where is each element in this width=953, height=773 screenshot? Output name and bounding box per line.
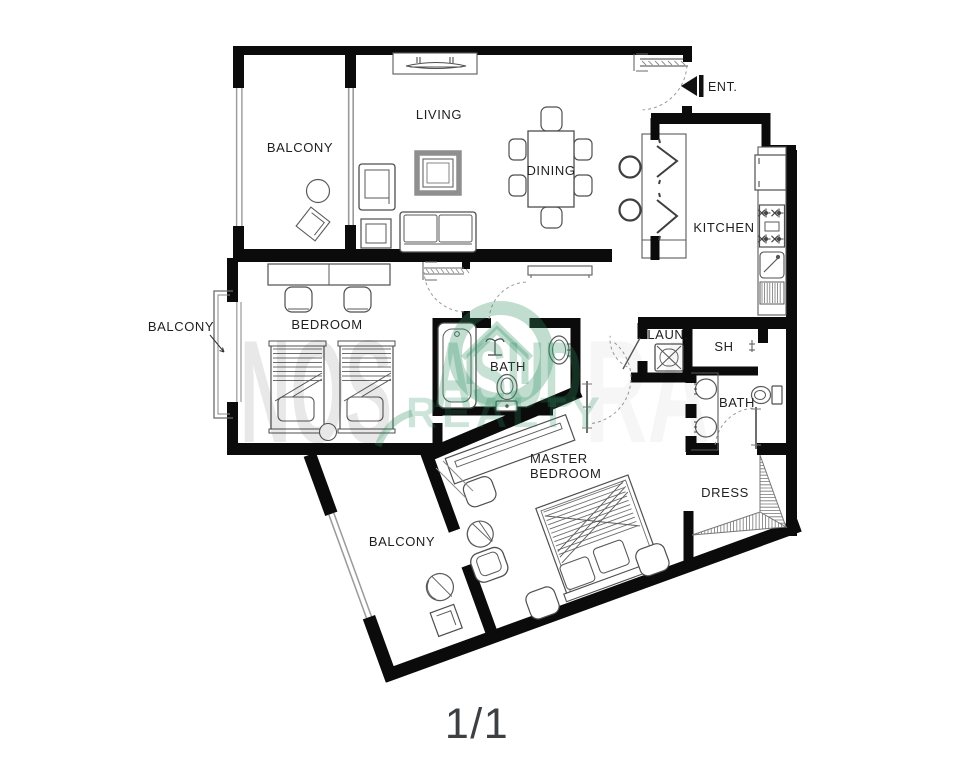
svg-text:DRESS: DRESS <box>701 485 749 500</box>
svg-text:KITCHEN: KITCHEN <box>693 220 754 235</box>
svg-text:BALCONY: BALCONY <box>267 140 333 155</box>
svg-text:1/1: 1/1 <box>445 700 509 748</box>
svg-text:NOS: NOS <box>240 310 392 473</box>
svg-text:SH: SH <box>714 339 733 354</box>
svg-text:BATH: BATH <box>719 395 755 410</box>
svg-text:LIVING: LIVING <box>416 107 462 122</box>
svg-text:BALCONY: BALCONY <box>148 319 214 334</box>
svg-text:ENT.: ENT. <box>708 80 738 94</box>
svg-text:MASTER: MASTER <box>530 451 588 466</box>
svg-text:DINING: DINING <box>526 163 575 178</box>
svg-text:REALTY: REALTY <box>406 389 605 437</box>
svg-text:BALCONY: BALCONY <box>369 534 435 549</box>
